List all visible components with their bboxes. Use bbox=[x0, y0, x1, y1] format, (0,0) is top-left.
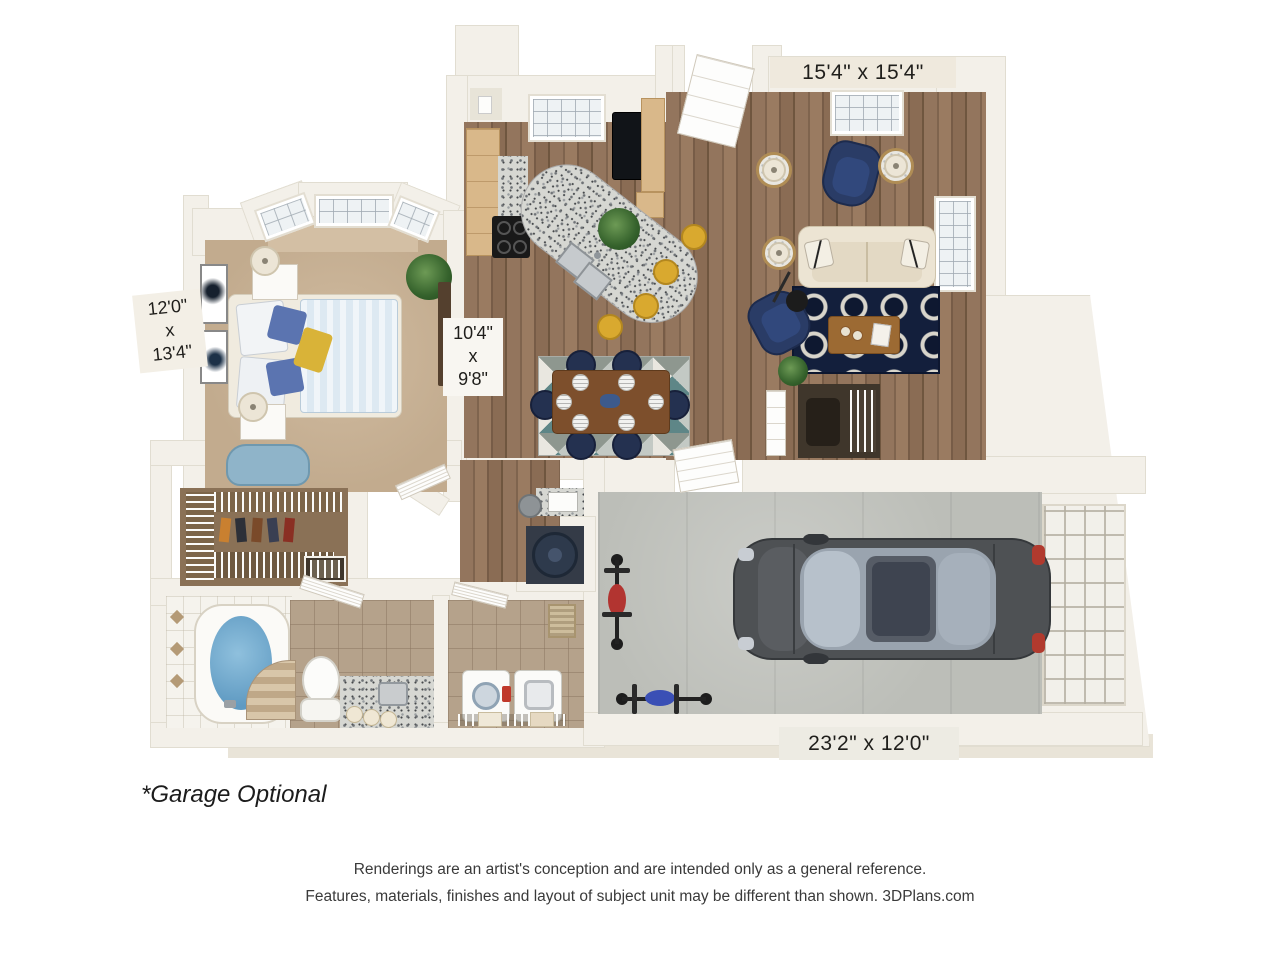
bedroom-dimensions: 12'0" x 13'4" bbox=[132, 289, 208, 374]
washer-door bbox=[472, 682, 500, 710]
coffee-table-magazine bbox=[871, 323, 892, 347]
vanity-sink bbox=[378, 682, 408, 706]
desk-printer bbox=[548, 492, 578, 512]
sofa-pillow bbox=[803, 238, 834, 271]
bar-stool bbox=[653, 259, 679, 285]
garage-optional-footnote: *Garage Optional bbox=[141, 781, 326, 809]
bay-window-right-glass bbox=[394, 202, 435, 237]
closet-shelf-top bbox=[214, 492, 342, 512]
folded-towel bbox=[478, 712, 502, 727]
living-right-window-glass bbox=[939, 201, 971, 287]
disclaimer-line1: Renderings are an artist's conception an… bbox=[0, 856, 1280, 883]
vanity-towel bbox=[363, 709, 380, 726]
coat-closet-shelf bbox=[850, 390, 876, 452]
coffee-table-cup bbox=[852, 330, 863, 341]
garage-dimensions: 23'2" x 12'0" bbox=[779, 727, 959, 760]
table-lamp bbox=[762, 158, 786, 182]
dining-plate bbox=[572, 414, 589, 431]
wall-garage-top-right bbox=[742, 456, 1146, 494]
exercise-bike bbox=[600, 552, 634, 652]
bedroom-loveseat bbox=[226, 444, 310, 486]
dining-chair bbox=[566, 430, 596, 460]
car bbox=[732, 534, 1054, 664]
living-top-window-glass bbox=[835, 95, 899, 131]
dining-plate bbox=[648, 394, 664, 410]
bay-window-center bbox=[314, 194, 394, 228]
vanity-towel bbox=[346, 706, 363, 723]
floor-plan-canvas: 15'4" x 15'4" 12'0" x 13'4" 10'4" x 9'8"… bbox=[0, 0, 1280, 960]
disclaimer: Renderings are an artist's conception an… bbox=[0, 856, 1280, 910]
closet-clothes bbox=[235, 518, 247, 543]
bar-stool bbox=[681, 224, 707, 250]
dining-plate bbox=[618, 414, 635, 431]
floor-lamp bbox=[786, 290, 808, 312]
stove-burner bbox=[513, 240, 527, 254]
table-lamp bbox=[884, 154, 908, 178]
kitchen-dim-line2: x bbox=[443, 345, 503, 368]
kitchen-dim-line3: 9'8" bbox=[443, 368, 503, 391]
kitchen-dim-line1: 10'4" bbox=[443, 322, 503, 345]
kitchen-dining-dimensions: 10'4" x 9'8" bbox=[443, 318, 503, 396]
linen-basket bbox=[310, 560, 340, 578]
closet-clothes bbox=[251, 518, 263, 543]
closet-clothes bbox=[283, 518, 295, 543]
island-plant bbox=[598, 208, 640, 250]
table-lamp bbox=[768, 242, 790, 264]
kitchen-window bbox=[528, 94, 606, 142]
tub-faucet bbox=[224, 700, 236, 708]
vanity-towel bbox=[380, 711, 397, 728]
closet-shelf-left bbox=[186, 492, 214, 580]
desk-chair bbox=[518, 494, 542, 518]
bar-stool bbox=[633, 293, 659, 319]
coffee-table-cup bbox=[840, 326, 851, 337]
nightstand-lamp bbox=[250, 246, 280, 276]
bay-window-center-glass bbox=[319, 199, 389, 223]
nightstand-lamp bbox=[238, 392, 268, 422]
kitchen-pantry-cabinet bbox=[641, 98, 665, 192]
toilet-bowl bbox=[302, 656, 340, 704]
detergent-bottle bbox=[502, 686, 511, 702]
living-rug-plant bbox=[778, 356, 808, 386]
living-right-window bbox=[934, 196, 976, 292]
toilet-tank bbox=[300, 698, 342, 722]
kitchen-nook-appliance bbox=[478, 96, 492, 114]
sofa-pillow bbox=[900, 238, 930, 270]
dining-plate bbox=[618, 374, 635, 391]
dining-plate bbox=[556, 394, 572, 410]
living-top-window bbox=[830, 90, 904, 136]
coat-closet-door bbox=[766, 390, 786, 456]
disclaimer-line2: Features, materials, finishes and layout… bbox=[0, 883, 1280, 910]
exercise-bike bbox=[614, 682, 714, 716]
kitchen-window-glass bbox=[533, 99, 601, 137]
garage-door bbox=[1042, 504, 1126, 706]
island-faucet bbox=[594, 252, 601, 259]
water-heater-cap bbox=[548, 548, 562, 562]
sofa-cushion-divider bbox=[866, 242, 868, 282]
dining-plate bbox=[572, 374, 589, 391]
hall-garage-door bbox=[673, 439, 740, 493]
folded-towel bbox=[530, 712, 554, 727]
stove-burner bbox=[497, 221, 511, 235]
kitchen-fridge bbox=[612, 112, 644, 180]
dining-chair bbox=[612, 430, 642, 460]
coat-closet-items bbox=[806, 398, 840, 446]
dining-centerpiece bbox=[600, 394, 620, 408]
living-room-dimensions: 15'4" x 15'4" bbox=[770, 57, 956, 88]
bar-stool bbox=[597, 314, 623, 340]
laundry-hamper bbox=[548, 604, 576, 638]
dryer-door bbox=[524, 680, 554, 710]
wall-art bbox=[200, 264, 228, 324]
stove-burner bbox=[497, 240, 511, 254]
